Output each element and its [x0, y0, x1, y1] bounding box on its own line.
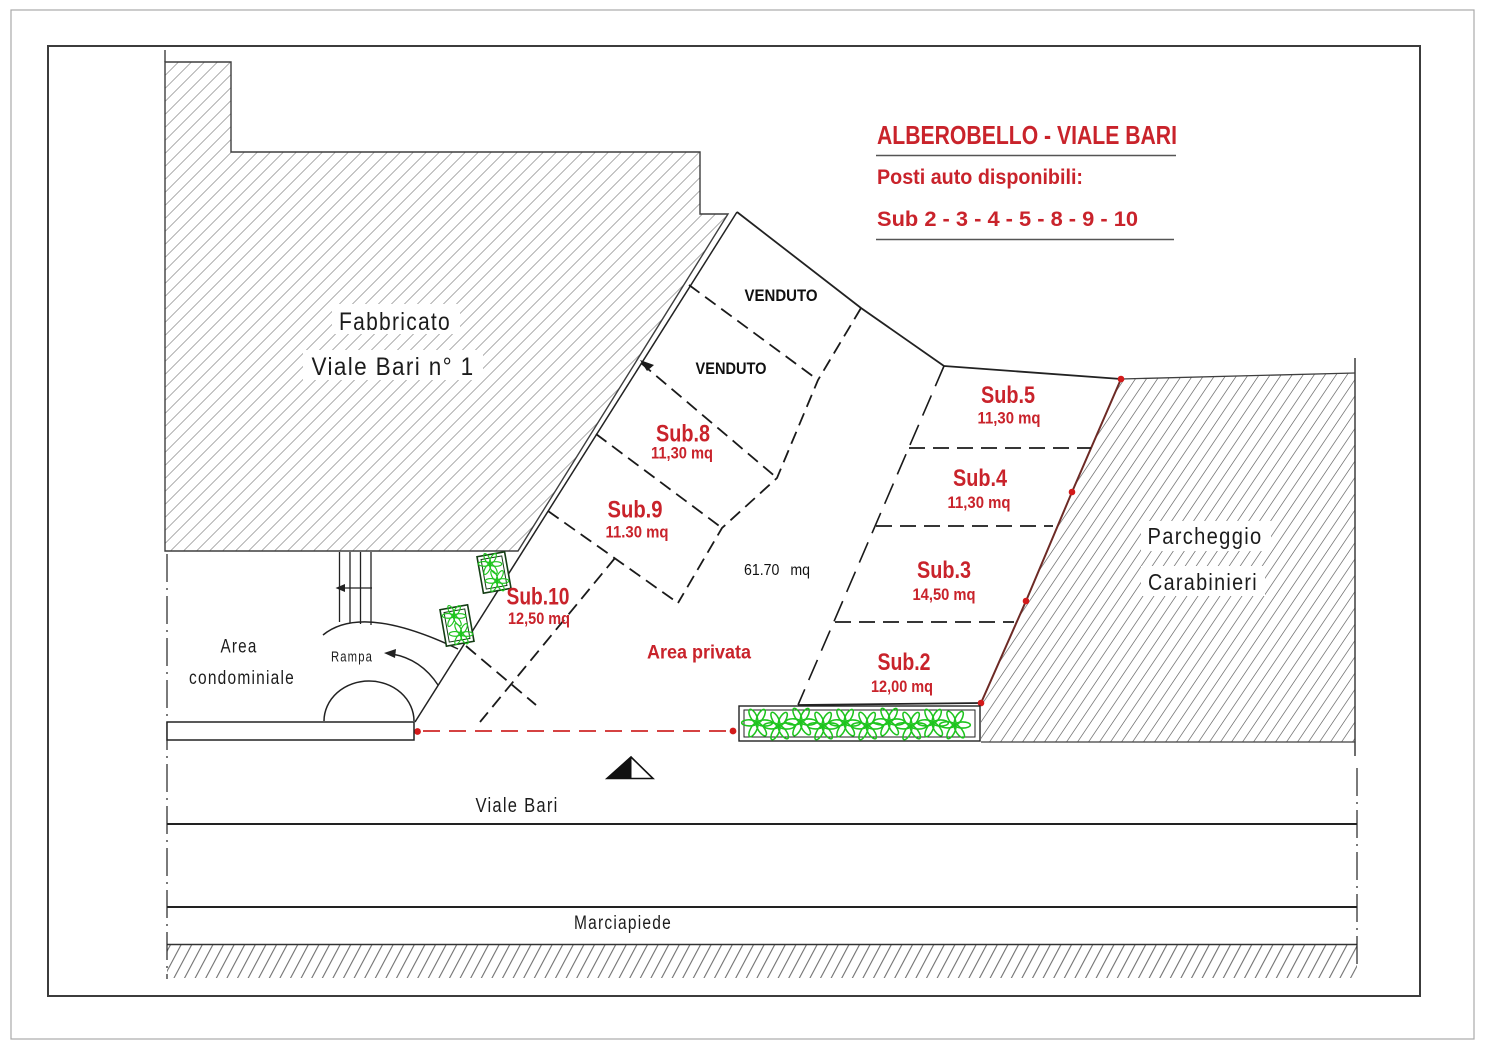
- svg-text:Sub.2: Sub.2: [878, 649, 931, 676]
- svg-text:12,00 mq: 12,00 mq: [871, 677, 933, 696]
- svg-text:Rampa: Rampa: [331, 649, 373, 666]
- svg-text:61.70 mq: 61.70 mq: [744, 562, 810, 579]
- svg-text:Viale Bari n° 1: Viale Bari n° 1: [312, 353, 475, 381]
- svg-text:Area: Area: [221, 637, 258, 658]
- svg-text:condominiale: condominiale: [189, 668, 295, 689]
- svg-text:VENDUTO: VENDUTO: [745, 287, 818, 305]
- svg-text:Sub.3: Sub.3: [917, 557, 971, 584]
- svg-text:Sub.4: Sub.4: [953, 465, 1008, 492]
- svg-text:ALBEROBELLO - VIALE BARI: ALBEROBELLO - VIALE BARI: [877, 120, 1177, 150]
- svg-text:11.30 mq: 11.30 mq: [606, 523, 669, 542]
- svg-text:Viale Bari: Viale Bari: [476, 795, 559, 817]
- svg-text:Carabinieri: Carabinieri: [1148, 569, 1258, 595]
- svg-text:14,50 mq: 14,50 mq: [913, 585, 976, 604]
- svg-text:11,30 mq: 11,30 mq: [948, 493, 1011, 512]
- svg-text:12,50 mq: 12,50 mq: [508, 609, 570, 628]
- svg-text:Posti auto disponibili:: Posti auto disponibili:: [877, 166, 1083, 189]
- svg-text:Parcheggio: Parcheggio: [1148, 523, 1263, 549]
- svg-text:Area privata: Area privata: [647, 643, 751, 664]
- svg-text:Sub.10: Sub.10: [507, 584, 570, 611]
- svg-text:11,30 mq: 11,30 mq: [978, 409, 1041, 428]
- svg-text:Marciapiede: Marciapiede: [574, 913, 672, 934]
- svg-text:Fabbricato: Fabbricato: [339, 308, 451, 336]
- svg-text:Sub 2 - 3 - 4 - 5 - 8 - 9 - 10: Sub 2 - 3 - 4 - 5 - 8 - 9 - 10: [877, 208, 1138, 231]
- svg-text:Sub.5: Sub.5: [981, 382, 1035, 409]
- svg-text:11,30 mq: 11,30 mq: [651, 444, 713, 463]
- svg-text:VENDUTO: VENDUTO: [696, 360, 767, 378]
- svg-text:Sub.9: Sub.9: [608, 497, 663, 524]
